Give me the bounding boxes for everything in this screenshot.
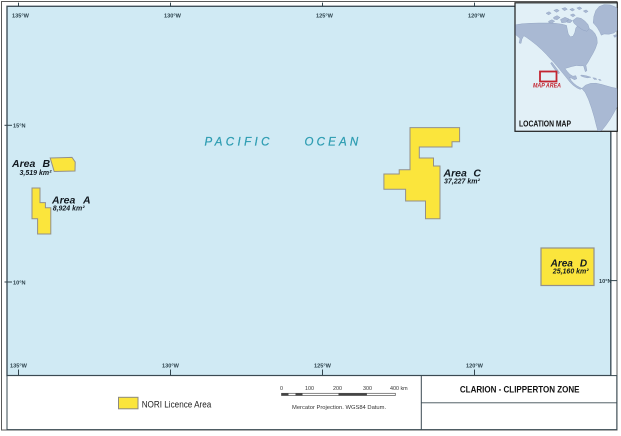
svg-text:125°W: 125°W xyxy=(316,14,334,20)
svg-text:10°N: 10°N xyxy=(13,280,26,286)
svg-text:MAP AREA: MAP AREA xyxy=(533,84,561,90)
svg-text:135°W: 135°W xyxy=(12,14,30,20)
svg-text:135°W: 135°W xyxy=(10,364,28,370)
svg-text:8,924 km²: 8,924 km² xyxy=(53,206,86,213)
svg-text:Mercator Projection. WGS84 Dat: Mercator Projection. WGS84 Datum. xyxy=(292,405,386,411)
svg-text:37,227 km²: 37,227 km² xyxy=(444,179,480,186)
svg-text:10°N: 10°N xyxy=(599,279,612,285)
svg-text:3,519 km²: 3,519 km² xyxy=(20,170,53,177)
svg-text:Area: Area xyxy=(51,194,76,206)
svg-text:15°N: 15°N xyxy=(13,124,26,130)
svg-text:300: 300 xyxy=(363,386,372,392)
svg-text:130°W: 130°W xyxy=(162,364,180,370)
svg-text:120°W: 120°W xyxy=(466,364,484,370)
svg-text:100: 100 xyxy=(305,386,314,392)
svg-text:LOCATION MAP: LOCATION MAP xyxy=(519,119,571,128)
svg-text:C: C xyxy=(473,167,481,179)
svg-text:125°W: 125°W xyxy=(314,364,332,370)
svg-text:25,160 km²: 25,160 km² xyxy=(552,269,589,276)
svg-text:400 km: 400 km xyxy=(390,386,408,392)
svg-text:B: B xyxy=(43,158,51,170)
svg-text:120°W: 120°W xyxy=(468,14,486,20)
svg-text:CLARION - CLIPPERTON ZONE: CLARION - CLIPPERTON ZONE xyxy=(460,384,580,395)
svg-text:PACIFIC: PACIFIC xyxy=(205,137,273,149)
svg-text:Area: Area xyxy=(11,158,36,170)
svg-text:OCEAN: OCEAN xyxy=(305,137,362,149)
svg-text:130°W: 130°W xyxy=(164,14,182,20)
svg-text:Area: Area xyxy=(443,167,468,179)
svg-text:NORI Licence Area: NORI Licence Area xyxy=(142,399,212,410)
svg-text:A: A xyxy=(82,194,91,206)
svg-text:200: 200 xyxy=(333,386,342,392)
svg-text:0: 0 xyxy=(280,386,283,392)
